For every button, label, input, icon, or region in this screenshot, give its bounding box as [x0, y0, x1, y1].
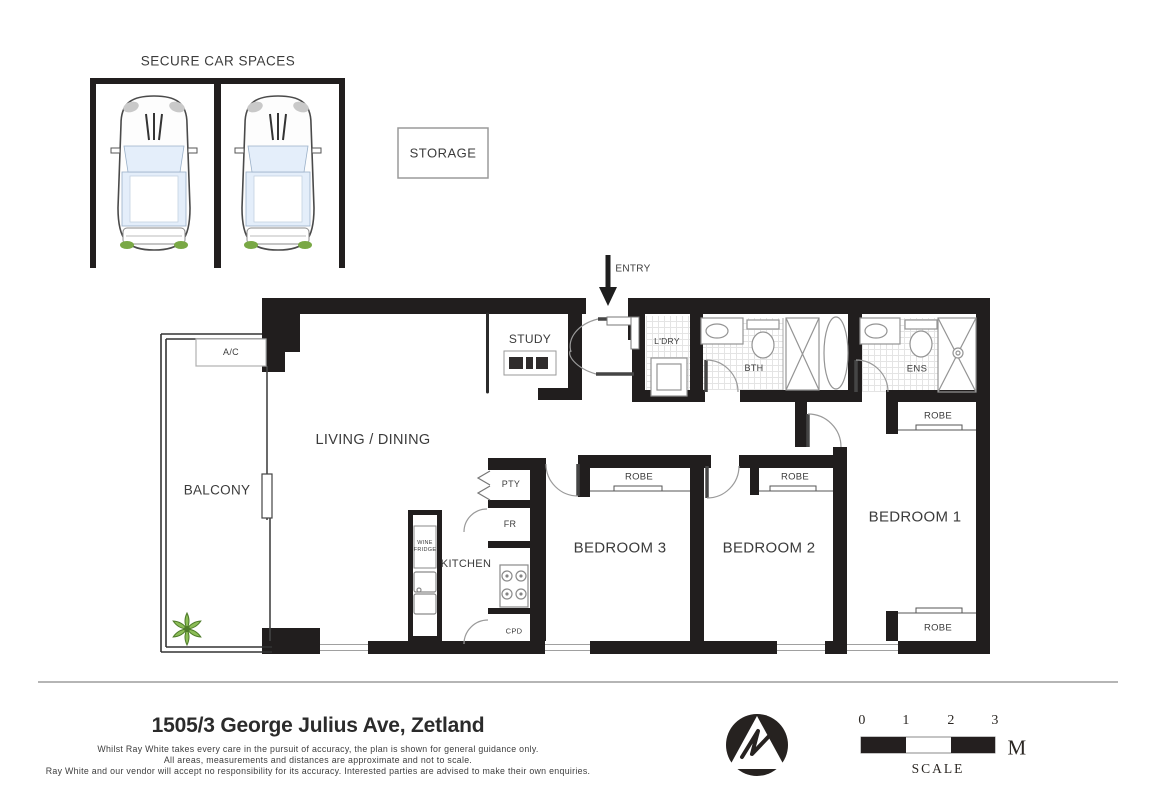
laundry-washer-icon	[651, 358, 687, 396]
laundry-label: L'DRY	[654, 336, 680, 346]
robe-bedroom3-label: ROBE	[625, 472, 653, 483]
disclaimer-line-3: Ray White and our vendor will accept no …	[46, 766, 591, 776]
entry-cabinet-icon	[607, 317, 639, 349]
ensuite-toilet-icon	[905, 320, 937, 357]
wine-fridge-label: WINE FRIDGE	[414, 540, 437, 554]
wine-fridge-line1: WINE	[417, 540, 433, 547]
address-title: 1505/3 George Julius Ave, Zetland	[152, 714, 485, 738]
bathroom-door	[706, 360, 738, 392]
bathroom-vanity-icon	[701, 318, 743, 344]
bathroom-shower-icon	[786, 318, 819, 390]
disclaimer-line-1: Whilst Ray White takes every care in the…	[97, 744, 538, 754]
ensuite-shower-icon	[938, 318, 976, 392]
living-dining-label: LIVING / DINING	[316, 432, 431, 448]
disclaimer-line-2: All areas, measurements and distances ar…	[164, 755, 472, 765]
robe-bedroom1-bottom-label: ROBE	[924, 623, 952, 634]
scale-tick-0: 0	[858, 713, 865, 729]
bedroom1-label: BEDROOM 1	[869, 509, 962, 526]
hall-bedroom1-door	[808, 414, 841, 447]
bathroom-label: BTH	[745, 363, 764, 373]
entry-label: ENTRY	[615, 264, 650, 275]
scale-tick-2: 2	[947, 713, 954, 729]
fridge-door-arc	[464, 509, 487, 532]
kitchen-label: KITCHEN	[441, 558, 491, 570]
car-spaces-title: SECURE CAR SPACES	[141, 54, 296, 69]
bedroom2-label: BEDROOM 2	[723, 540, 816, 557]
robe-bedroom1-top-label: ROBE	[924, 411, 952, 422]
scale-tick-3: 3	[991, 713, 998, 729]
plant-icon	[172, 613, 202, 645]
ac-unit-label: A/C	[223, 347, 239, 357]
bathroom-toilet-icon	[747, 320, 779, 358]
scale-label: SCALE	[912, 761, 965, 777]
car-right-icon	[235, 96, 321, 250]
bedroom2-door	[707, 466, 739, 498]
pantry-bifold-door	[478, 471, 490, 500]
ensuite-label: ENS	[907, 364, 927, 375]
floor-plan-page: SECURE CAR SPACES STORAGE ENTRY STUDY L'…	[0, 0, 1156, 804]
storage-label: STORAGE	[410, 146, 477, 161]
ensuite-vanity-icon	[860, 318, 900, 344]
wine-fridge-line2: FRIDGE	[414, 547, 437, 554]
scale-tick-1: 1	[902, 713, 909, 729]
bedroom3-label: BEDROOM 3	[574, 540, 667, 557]
car-left-icon	[111, 96, 197, 250]
footer-divider	[38, 681, 1118, 683]
compass-north-icon	[726, 714, 788, 776]
bathtub-icon	[824, 317, 848, 389]
robe-bedroom2-label: ROBE	[781, 472, 809, 483]
scale-unit: M	[1008, 736, 1027, 761]
study-desk-icon	[504, 351, 556, 375]
kitchen-stove-icon	[500, 565, 528, 607]
cupboard-door-arc	[464, 620, 488, 644]
cupboard-label: CPD	[506, 627, 523, 636]
balcony-sliding-door	[262, 366, 272, 641]
balcony-label: BALCONY	[184, 483, 251, 498]
entry-arrow-icon	[599, 255, 617, 306]
study-label: STUDY	[509, 332, 551, 346]
pantry-label: PTY	[502, 479, 520, 489]
bedroom3-door	[546, 464, 578, 496]
fridge-label: FR	[504, 519, 517, 529]
scale-bar	[861, 737, 995, 753]
floor-plan-drawing	[0, 0, 1156, 804]
